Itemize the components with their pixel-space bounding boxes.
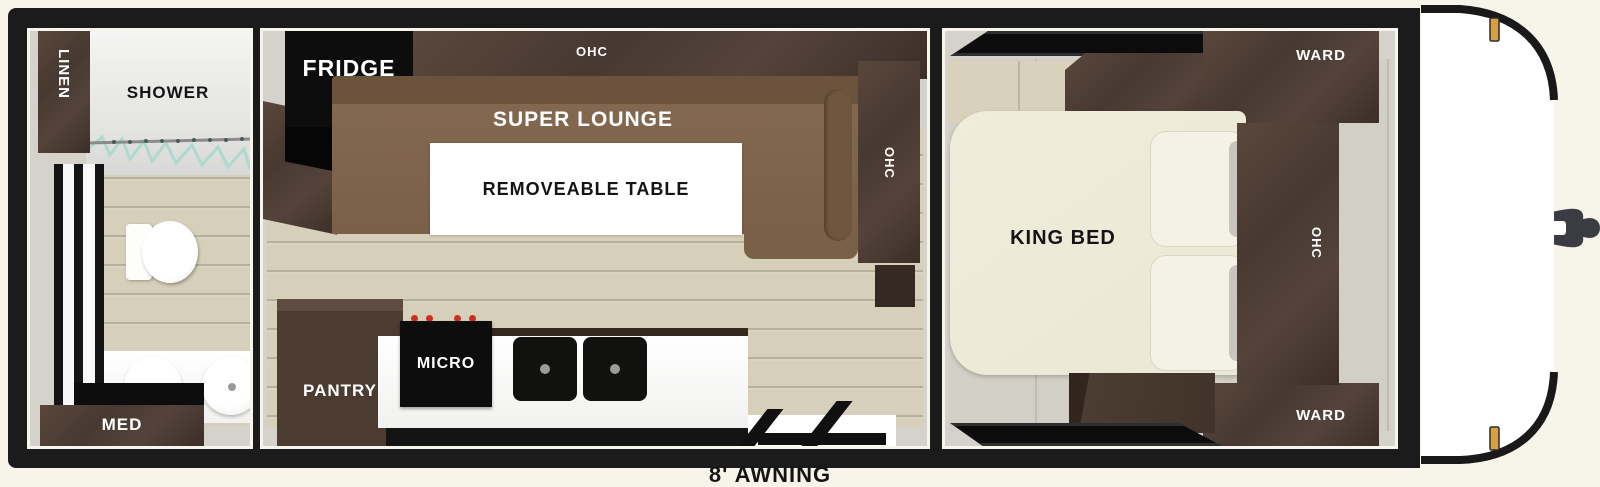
shower-glass-door-icon	[86, 127, 250, 179]
king-bed-label: KING BED	[963, 227, 1163, 250]
shower-label: SHOWER	[86, 83, 250, 103]
bedroom-window-bottom-icon	[950, 423, 1222, 446]
sink-basin-left-icon	[513, 337, 577, 401]
wardrobe-bottom: WARD	[1203, 383, 1379, 446]
right-lower-cabinet	[875, 265, 915, 307]
wardrobe-top: WARD	[1203, 31, 1379, 123]
ohc-column: OHC	[1237, 123, 1339, 385]
kitchen-window-icon	[386, 428, 748, 446]
ohc-top-label: OHC	[562, 44, 622, 59]
entry-step-bar	[758, 433, 886, 445]
kitchen-living-section: OHC FRIDGE SUPER LOUNGE REMOVEABLE TABLE…	[263, 31, 927, 446]
linen-cabinet: LINEN	[38, 31, 90, 153]
bedroom-ohc-label: OHC	[1309, 227, 1324, 259]
ohc-right-cabinet: OHC	[858, 61, 920, 263]
front-cap	[1398, 0, 1600, 487]
micro-label: MICRO	[400, 355, 492, 373]
linen-label: LINEN	[55, 49, 72, 99]
bedroom-window-top-icon	[950, 31, 1242, 56]
table-label: REMOVEABLE TABLE	[430, 179, 742, 200]
marker-light-bottom-icon	[1490, 427, 1499, 450]
ward-bottom-label: WARD	[1263, 407, 1379, 424]
lounge-label: SUPER LOUNGE	[473, 108, 693, 132]
bedroom-section: WARD OHC WARD KING BED	[945, 31, 1395, 446]
awning-label: 8' AWNING	[640, 462, 900, 487]
ward-top-label: WARD	[1263, 47, 1379, 64]
lounge-bolster	[824, 89, 852, 241]
med-label: MED	[40, 415, 204, 435]
removable-table: REMOVEABLE TABLE	[430, 143, 742, 235]
med-cabinet: MED	[40, 405, 204, 446]
ohc-top-cabinet: OHC	[411, 31, 927, 79]
rv-floorplan: SHOWER LINEN	[0, 0, 1600, 487]
marker-light-top-icon	[1490, 18, 1499, 41]
cap-body	[1421, 9, 1554, 460]
sink-basin-right-icon	[583, 337, 647, 401]
bathroom-window-icon	[54, 164, 104, 410]
toilet-icon	[126, 221, 198, 283]
ohc-right-label: OHC	[882, 147, 897, 179]
bathroom-section: SHOWER LINEN	[30, 31, 250, 446]
microwave-stove: MICRO	[400, 321, 492, 407]
